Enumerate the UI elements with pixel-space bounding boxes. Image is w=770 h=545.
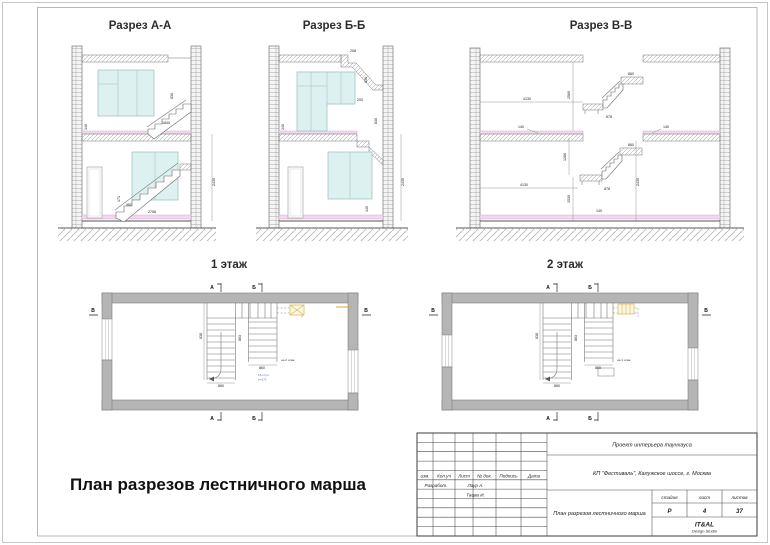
col-header-podpis: Подпись: [499, 474, 518, 479]
dim-label: 878: [606, 115, 612, 119]
dim-label: 1530: [567, 195, 571, 203]
floor2-title: 2 этаж: [547, 259, 584, 271]
section-marker-b: Б: [252, 416, 256, 422]
dim-label: 863: [238, 335, 242, 341]
dim-label: 838: [199, 333, 203, 339]
dim-label: 171: [117, 196, 121, 202]
dim-label: 140: [518, 125, 524, 129]
dim-label: 863: [574, 335, 578, 341]
dim-label: 2758: [148, 210, 156, 214]
stair-direction-note: на 1 этаж: [617, 358, 631, 362]
floor1-plan: 1 этаж 838 863 860 860 на 2 этаж 15 ступ…: [89, 259, 371, 422]
project-address: КП "Фестиваль", Калужское шоссе, г. Моск…: [593, 471, 711, 477]
section-marker-v: В: [91, 308, 95, 314]
project-title: Проект интерьера таунхауса: [612, 443, 692, 449]
floor2-plan: 2 этаж 838 863 860 860 на 1 этаж А А Б Б…: [429, 259, 711, 422]
section-marker-b: Б: [588, 285, 592, 291]
dim-label: 878: [604, 187, 610, 191]
dim-label: 140: [663, 125, 669, 129]
floor1-title: 1 этаж: [211, 259, 248, 271]
col-header-list: Лист: [457, 474, 470, 479]
stage-label: стадия: [661, 495, 678, 500]
dim-label: 1286: [563, 153, 567, 161]
dim-label: 4130: [520, 183, 528, 187]
studio-name: IT&AL: [695, 522, 714, 529]
section-a-drawing: Разрез А-А 836 1840 960 171 2758 140 243…: [58, 20, 216, 241]
dim-label: 208: [350, 49, 356, 53]
section-marker-v: В: [364, 308, 368, 314]
section-v-drawing: Разрез В-В 4130 4130 2560 1286 1530 2430…: [456, 20, 744, 241]
row-razrabot: Разработ.: [425, 483, 448, 488]
section-marker-b: Б: [588, 416, 592, 422]
sheet-footer-title: План разрезов лестничного марша: [70, 475, 367, 494]
col-header-ndok: № док.: [477, 474, 492, 479]
dim-label: 2430: [401, 178, 405, 186]
dim-label: 140: [84, 124, 88, 130]
dim-label: 1840: [162, 121, 170, 125]
dim-label: 140: [596, 209, 602, 213]
section-v-title: Разрез В-В: [570, 20, 633, 32]
title-block: изм. Кол.уч Лист № док. Подпись Дата Раз…: [417, 433, 757, 536]
dim-label: 960: [126, 203, 132, 207]
dim-label: 140: [281, 124, 285, 130]
col-header-data: Дата: [527, 474, 541, 479]
dim-label: 4130: [523, 97, 531, 101]
sheets-label: листов: [730, 495, 748, 500]
dim-label: 2430: [636, 178, 640, 186]
dim-label: 140: [365, 206, 369, 212]
dim-label: 860: [595, 366, 601, 370]
stair-note-line2: h=171: [258, 378, 267, 382]
section-b-title: Разрез Б-Б: [303, 20, 365, 32]
dim-label: 860: [259, 366, 265, 370]
sheets-value: 37: [736, 509, 743, 515]
author-name-1: Лаур А.: [466, 483, 483, 488]
dim-label: 830: [364, 77, 368, 83]
dim-label: 860: [218, 384, 224, 388]
section-marker-a: А: [210, 416, 214, 422]
stair-direction-note: на 2 этаж: [281, 358, 295, 362]
studio-subtitle: Design Studio: [692, 529, 718, 534]
dim-label: 2560: [567, 91, 571, 99]
dim-label: 2430: [212, 178, 216, 186]
section-b-drawing: Разрез Б-Б 208 830 200 830 2430 140 140: [256, 20, 408, 241]
drawing-canvas: Разрез А-А 836 1840 960 171 2758 140 243…: [0, 0, 770, 545]
author-name-2: Тацва И.: [466, 493, 485, 498]
section-marker-v: В: [431, 308, 435, 314]
document-title: План разрезов лестничного марша: [553, 511, 645, 517]
dim-label: 830: [374, 118, 378, 124]
col-header-izm: изм.: [420, 474, 429, 479]
dim-label: 836: [170, 93, 174, 99]
section-a-title: Разрез А-А: [109, 20, 172, 32]
dim-label: 838: [535, 333, 539, 339]
section-marker-b: Б: [252, 285, 256, 291]
stair-note-line1: 15 ступ.: [258, 373, 270, 377]
dim-label: 860: [628, 143, 634, 147]
sheet-value: 4: [702, 509, 707, 515]
section-marker-v: В: [704, 308, 708, 314]
dim-label: 860: [628, 72, 634, 76]
section-marker-a: А: [546, 416, 550, 422]
section-marker-a: А: [546, 285, 550, 291]
dim-label: 200: [357, 98, 363, 102]
section-marker-a: А: [210, 285, 214, 291]
sheet-label: лист: [698, 495, 710, 500]
drawing-sheet: Разрез А-А 836 1840 960 171 2758 140 243…: [0, 0, 770, 545]
dim-label: 860: [554, 384, 560, 388]
col-header-koluch: Кол.уч: [437, 474, 451, 479]
